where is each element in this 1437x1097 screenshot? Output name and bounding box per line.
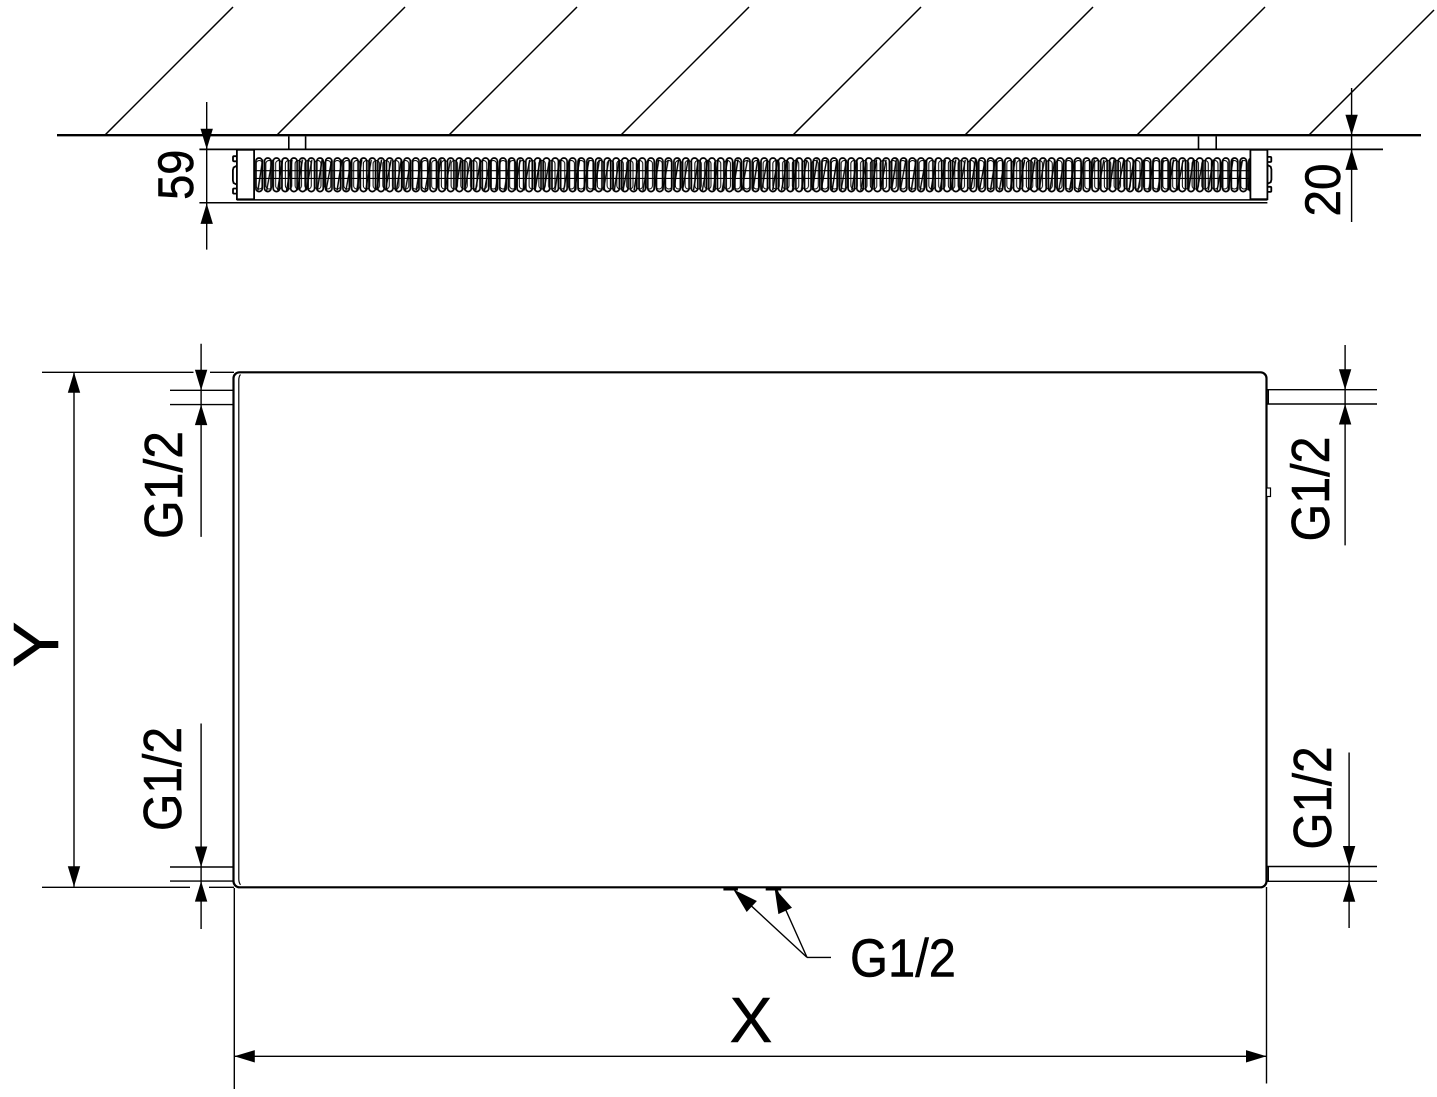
svg-text:Y: Y — [0, 622, 72, 668]
svg-text:59: 59 — [148, 150, 204, 200]
svg-text:G1/2: G1/2 — [850, 929, 956, 989]
svg-text:G1/2: G1/2 — [1281, 437, 1341, 542]
svg-text:G1/2: G1/2 — [134, 431, 194, 539]
svg-text:G1/2: G1/2 — [1283, 747, 1343, 850]
svg-text:G1/2: G1/2 — [133, 727, 193, 831]
svg-text:X: X — [730, 984, 773, 1056]
svg-text:20: 20 — [1295, 164, 1351, 217]
